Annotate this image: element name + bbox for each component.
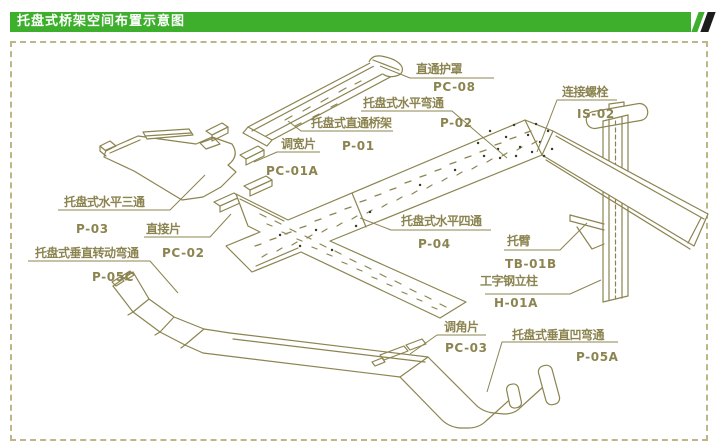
- part-name: 托臂: [507, 233, 531, 248]
- part-code: P-03: [76, 222, 109, 236]
- part-name: 托盘式水平弯通: [363, 95, 444, 110]
- part-name: 托盘式直通桥架: [311, 115, 392, 130]
- part-code: PC-02: [162, 246, 205, 260]
- part-name: 连接螺栓: [562, 84, 609, 99]
- label-straight-plate: 直接片 PC-02: [144, 214, 231, 260]
- part-name: 托盘式水平三通: [64, 194, 145, 209]
- page: 托盘式桥架空间布置示意图: [0, 0, 720, 448]
- part-code: P-02: [440, 116, 473, 130]
- label-vertical-rotating-bend: 托盘式垂直转动弯通 P-05C: [28, 245, 178, 293]
- part-bottom-tray-concave-bend: [203, 333, 561, 428]
- part-code: TB-01B: [505, 257, 557, 271]
- part-name: 调宽片: [281, 136, 316, 151]
- cable-tray-diagram: 直通护罩 PC-08 托盘式水平弯通 P-02 连接螺栓 IS-02 托盘式直通…: [0, 0, 720, 448]
- part-name: 调角片: [444, 319, 479, 334]
- label-ibeam-column: 工字钢立柱 H-01A: [480, 273, 601, 310]
- part-code: P-04: [418, 237, 451, 251]
- part-name: 托盘式水平四通: [401, 213, 482, 228]
- part-name: 直通护罩: [416, 61, 463, 76]
- part-support-arm: [570, 215, 604, 249]
- part-name: 工字钢立柱: [480, 273, 538, 288]
- part-name: 直接片: [146, 221, 181, 236]
- part-code: IS-02: [577, 107, 615, 121]
- part-code: P-05A: [576, 350, 619, 364]
- part-code: P-05C: [92, 270, 134, 284]
- part-code: PC-08: [433, 80, 476, 94]
- label-width-adjust-plate: 调宽片 PC-01A: [254, 136, 320, 178]
- part-code: H-01A: [494, 296, 538, 310]
- part-name: 托盘式垂直转动弯通: [35, 245, 139, 260]
- part-code: P-01: [342, 139, 375, 153]
- label-angle-plate: 调角片 PC-03: [410, 319, 488, 355]
- part-code: PC-01A: [266, 164, 319, 178]
- part-name: 托盘式垂直凹弯通: [512, 327, 605, 342]
- part-code: PC-03: [445, 341, 488, 355]
- label-support-arm: 托臂 TB-01B: [504, 223, 587, 271]
- part-angle-plates: [372, 339, 426, 366]
